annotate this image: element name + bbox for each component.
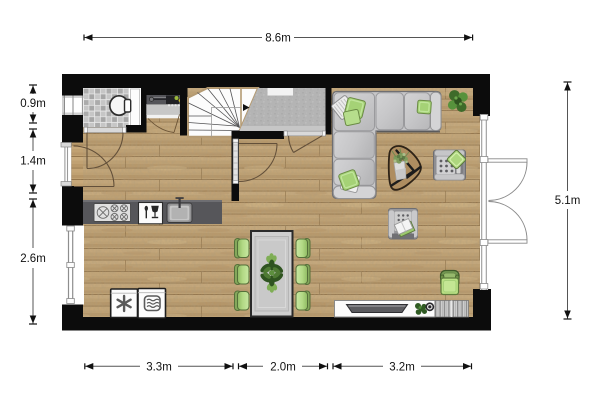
svg-text:3.3m: 3.3m (146, 361, 172, 373)
svg-text:2.0m: 2.0m (270, 361, 296, 373)
svg-text:8.6m: 8.6m (265, 33, 291, 45)
svg-text:1.4m: 1.4m (20, 156, 46, 168)
svg-text:5.1m: 5.1m (555, 195, 581, 207)
svg-text:0.9m: 0.9m (20, 98, 46, 110)
svg-text:2.6m: 2.6m (20, 253, 46, 265)
svg-text:3.2m: 3.2m (389, 361, 415, 373)
